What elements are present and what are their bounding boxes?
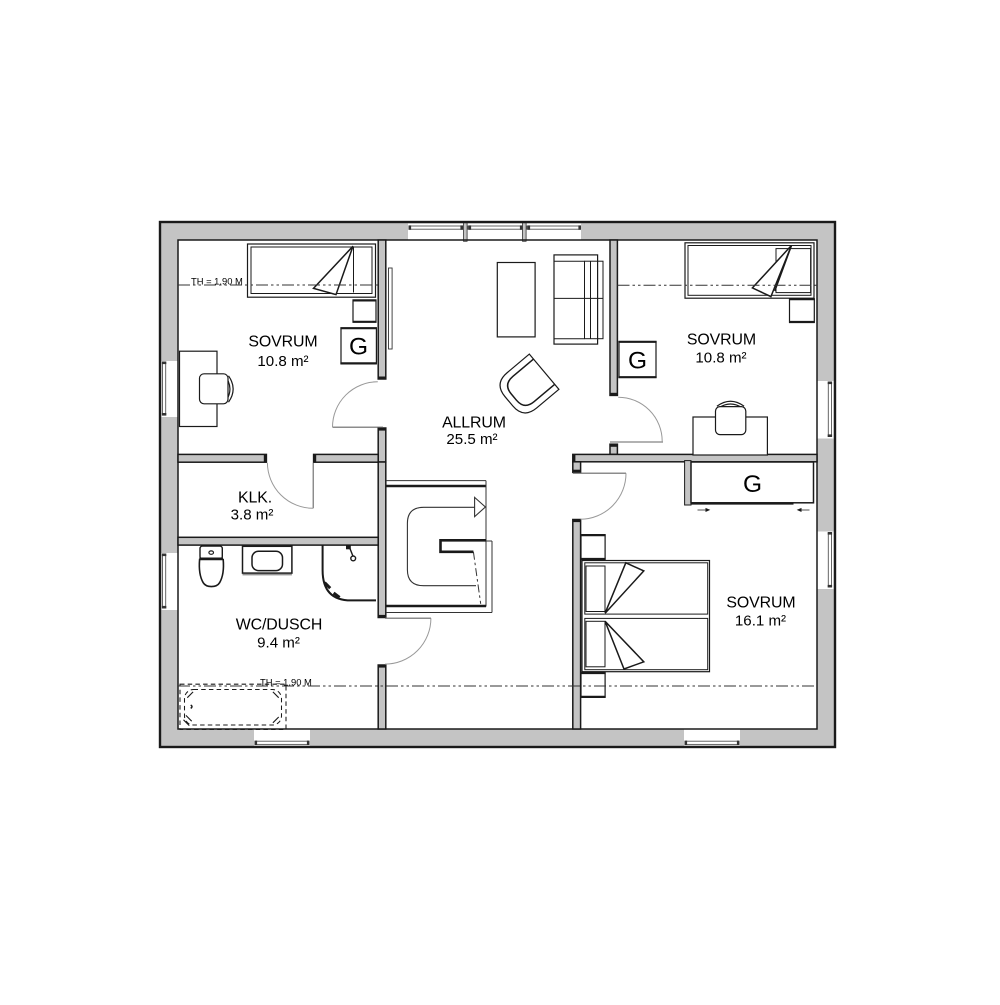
- svg-text:3.8 m²: 3.8 m²: [231, 507, 274, 524]
- svg-text:ALLRUM: ALLRUM: [442, 415, 506, 432]
- svg-text:SOVRUM: SOVRUM: [726, 595, 795, 612]
- svg-text:10.8 m²: 10.8 m²: [257, 353, 308, 370]
- svg-text:16.1 m²: 16.1 m²: [735, 613, 786, 630]
- svg-text:TH = 1.90 M: TH = 1.90 M: [260, 677, 312, 688]
- svg-text:SOVRUM: SOVRUM: [248, 334, 317, 351]
- svg-text:25.5 m²: 25.5 m²: [446, 431, 497, 448]
- svg-text:G: G: [628, 348, 647, 375]
- svg-text:9.4 m²: 9.4 m²: [257, 635, 300, 652]
- svg-text:WC/DUSCH: WC/DUSCH: [236, 617, 323, 634]
- svg-text:G: G: [349, 334, 368, 361]
- svg-text:KLK.: KLK.: [238, 490, 272, 507]
- svg-text:TH = 1.90 M: TH = 1.90 M: [191, 276, 243, 287]
- svg-text:G: G: [743, 471, 762, 498]
- svg-text:SOVRUM: SOVRUM: [687, 332, 756, 349]
- svg-text:10.8 m²: 10.8 m²: [695, 350, 746, 367]
